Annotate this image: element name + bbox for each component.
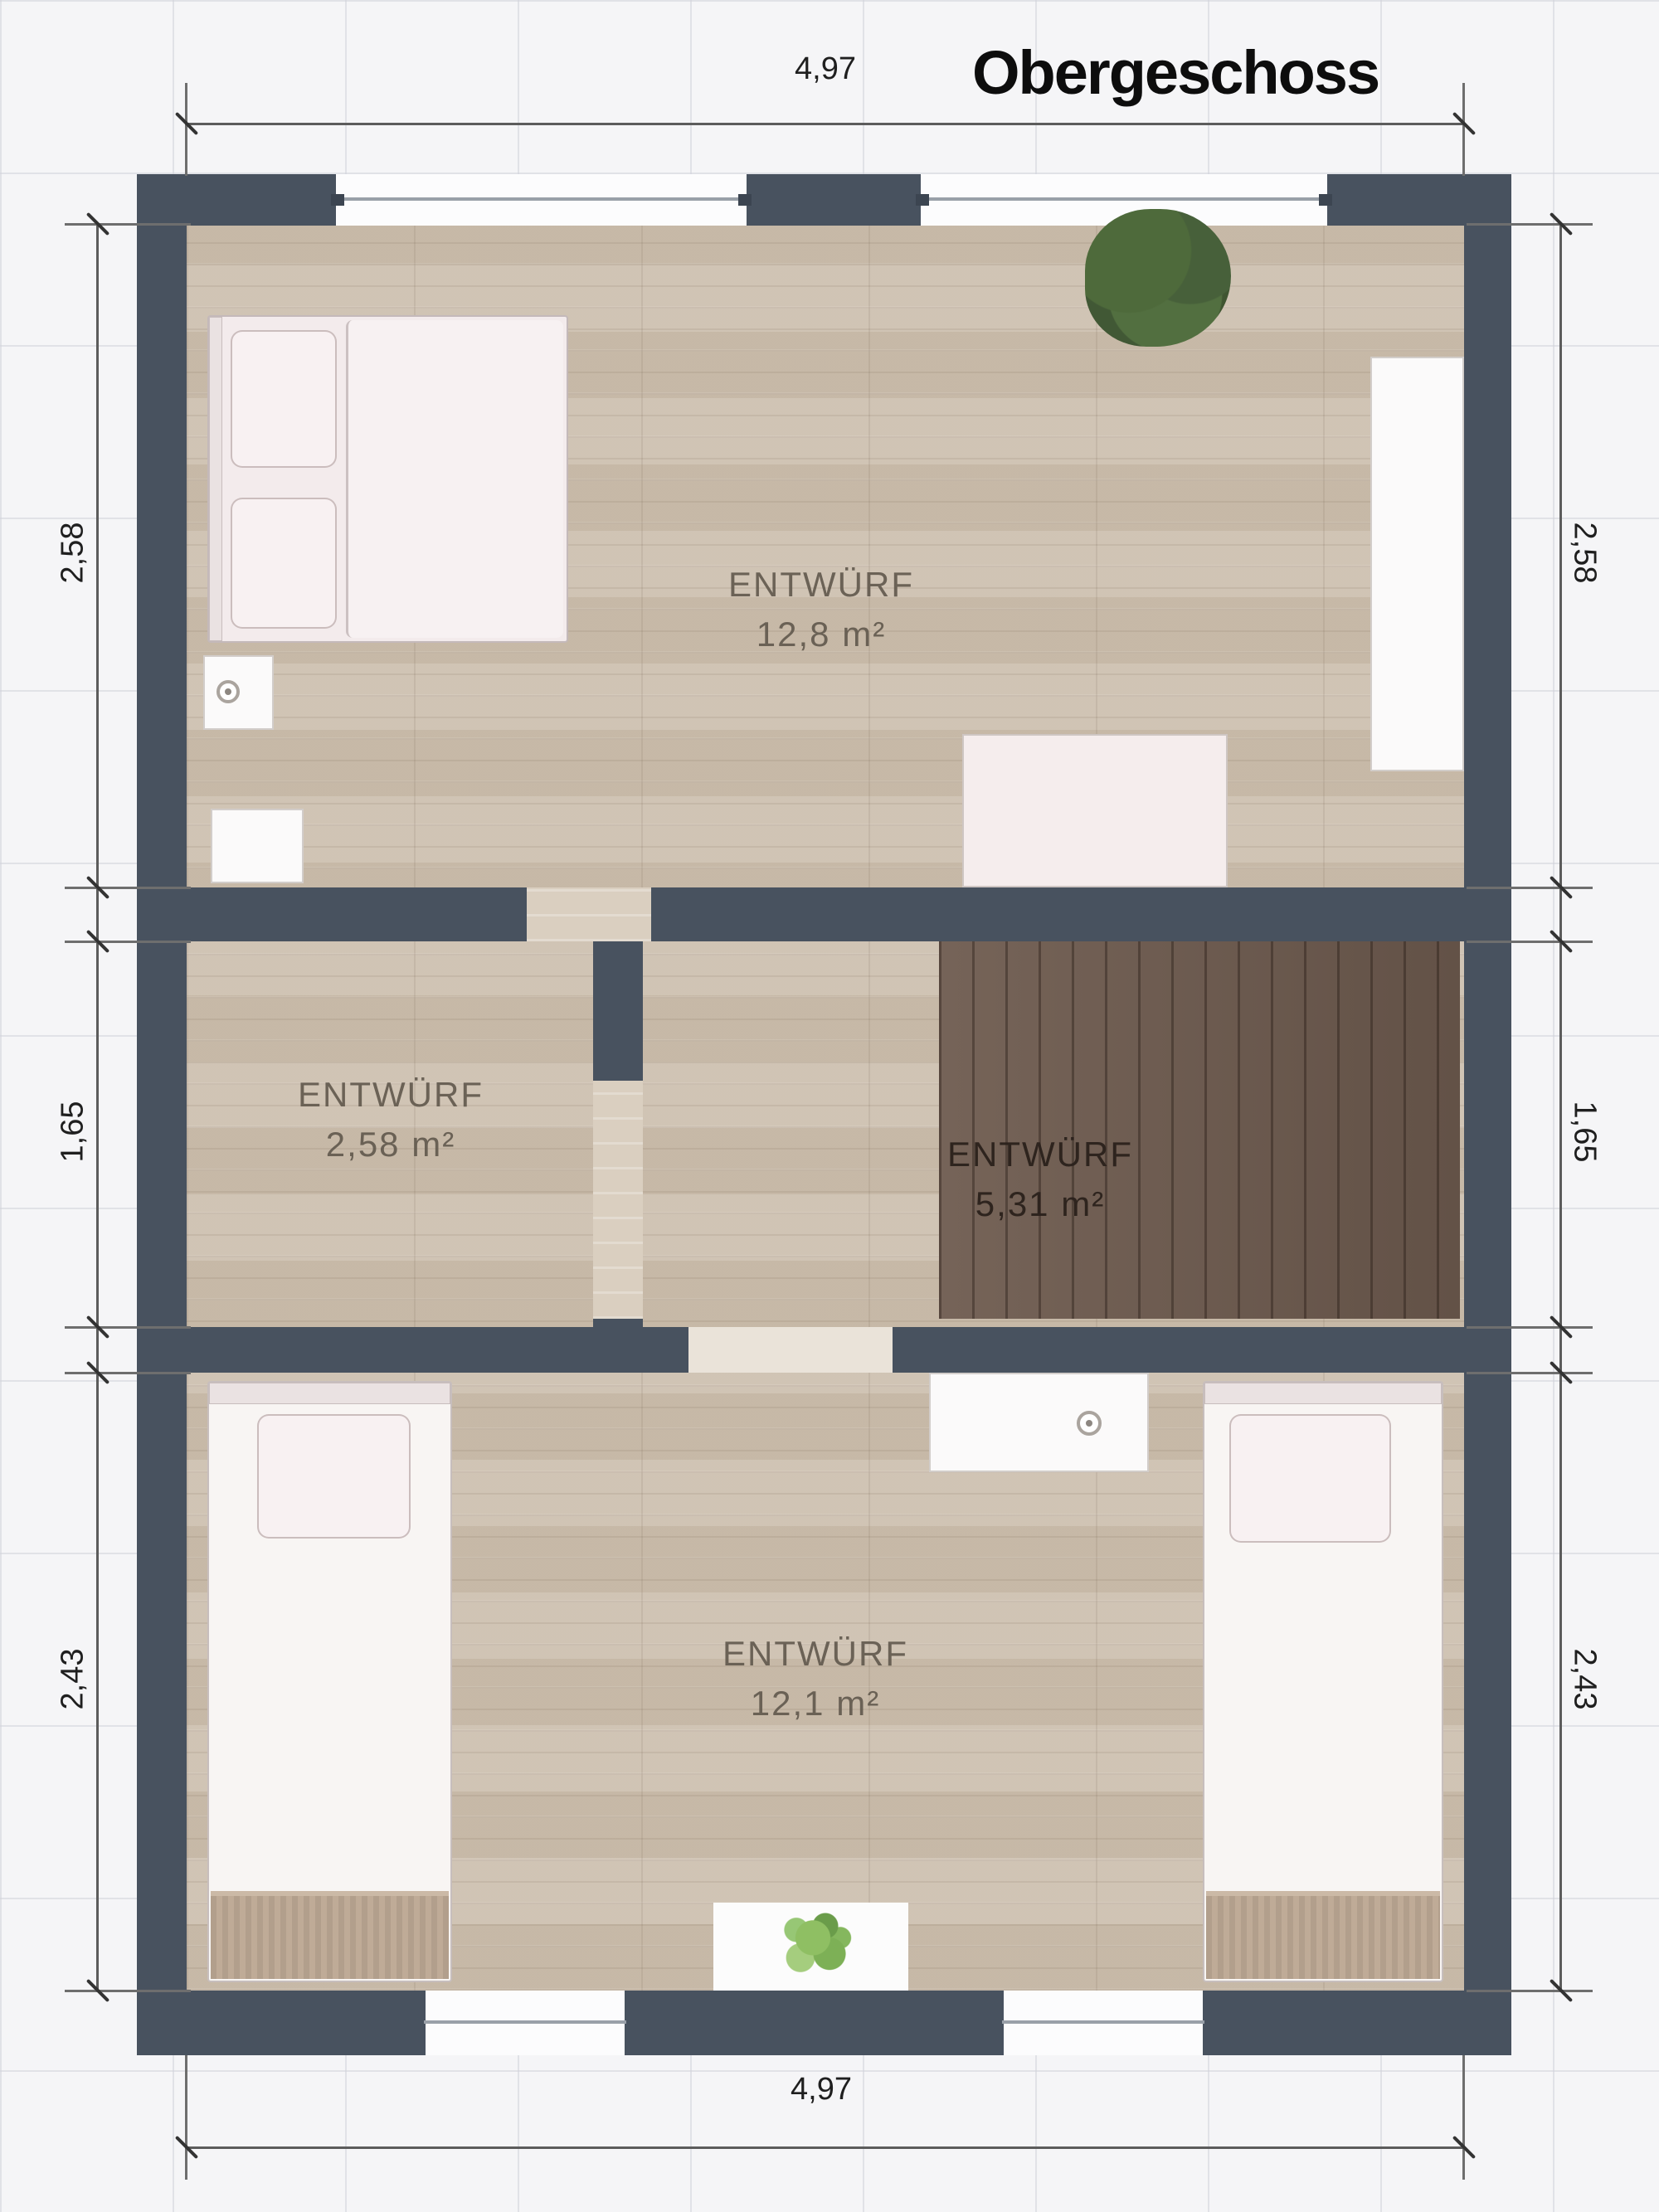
- wall-top-middle-pier: [747, 174, 921, 226]
- wall-bottom-right: [1203, 1991, 1511, 2055]
- room-area: 5,31 m²: [874, 1179, 1206, 1229]
- window-bottom-right: [1004, 1991, 1203, 2055]
- room-name: ENTWÜRF: [225, 1070, 557, 1120]
- dimension-line-left: [96, 224, 99, 1991]
- window-glazing: [919, 197, 1329, 201]
- dimension-label-right-middle: 1,65: [1567, 1049, 1603, 1215]
- dimension-line-right: [1559, 224, 1562, 1991]
- window-bottom-left: [426, 1991, 625, 2055]
- dimension-label-top: 4,97: [759, 51, 892, 87]
- bed-headboard: [1204, 1383, 1442, 1404]
- wall-left: [137, 174, 187, 2055]
- wardrobe: [1370, 357, 1464, 771]
- faucet-icon-center: [1086, 1420, 1092, 1427]
- double-bed: [207, 315, 568, 643]
- bed-duvet: [346, 320, 563, 638]
- window-glazing: [1002, 2020, 1204, 2024]
- small-plant-icon: [776, 1906, 859, 1986]
- pillow: [231, 498, 337, 629]
- bed-blanket: [1206, 1891, 1440, 1979]
- window-frame-nub: [916, 194, 929, 206]
- extension-line: [185, 83, 187, 176]
- wall-bottom-left: [137, 1991, 426, 2055]
- single-bed-left: [207, 1381, 452, 1982]
- extension-line: [65, 1990, 191, 1992]
- vanity-sink: [929, 1373, 1149, 1472]
- lamp-icon-center: [225, 688, 231, 695]
- wall-interior-c-right: [893, 1327, 1464, 1373]
- extension-line: [185, 2055, 187, 2180]
- pillow: [231, 330, 337, 468]
- extension-line: [1467, 223, 1593, 226]
- extension-line: [1467, 887, 1593, 889]
- wall-top-right-pier: [1327, 174, 1511, 226]
- pillow: [1229, 1414, 1391, 1543]
- page-title: Obergeschoss: [972, 37, 1379, 108]
- extension-line: [1467, 941, 1593, 943]
- extension-line: [1467, 1372, 1593, 1374]
- window-frame-nub: [1319, 194, 1332, 206]
- door-opening-closet: [593, 1081, 643, 1319]
- room-label-bedroom-top: ENTWÜRF 12,8 m²: [655, 560, 987, 659]
- nightstand: [203, 655, 274, 730]
- extension-line: [65, 1326, 191, 1329]
- dimension-label-left-middle: 1,65: [56, 1049, 91, 1215]
- wall-top-left-pier: [137, 174, 336, 226]
- wall-interior-a-right: [651, 887, 1464, 941]
- room-name: ENTWÜRF: [874, 1130, 1206, 1179]
- window-glazing: [334, 197, 748, 201]
- dimension-line-top: [187, 123, 1464, 125]
- dresser: [962, 734, 1228, 887]
- wall-interior-b-upper: [593, 941, 643, 1081]
- window-frame-nub: [738, 194, 752, 206]
- floorplan-page: Obergeschoss: [0, 0, 1659, 2212]
- extension-line: [65, 1372, 191, 1374]
- wall-interior-a-left: [187, 887, 527, 941]
- dimension-line-bottom: [187, 2146, 1464, 2149]
- window-glazing: [424, 2020, 626, 2024]
- room-label-bedroom-bottom: ENTWÜRF 12,1 m²: [649, 1629, 981, 1728]
- pillow: [257, 1414, 411, 1539]
- dimension-label-right-bottom: 2,43: [1567, 1597, 1603, 1762]
- room-area: 2,58 m²: [225, 1120, 557, 1169]
- extension-line: [1462, 83, 1465, 176]
- extension-line: [1467, 1990, 1593, 1992]
- bed-headboard: [209, 1383, 450, 1404]
- window-top-left: [336, 174, 747, 226]
- dimension-label-left-bottom: 2,43: [56, 1597, 91, 1762]
- extension-line: [65, 887, 191, 889]
- room-area: 12,8 m²: [655, 610, 987, 659]
- single-bed-right: [1203, 1381, 1443, 1982]
- wall-interior-c-left: [187, 1327, 688, 1373]
- extension-line: [65, 223, 191, 226]
- dimension-label-bottom: 4,97: [755, 2072, 888, 2107]
- room-area: 12,1 m²: [649, 1679, 981, 1728]
- extension-line: [1467, 1326, 1593, 1329]
- wall-bottom-middle: [625, 1991, 1004, 2055]
- wall-right: [1464, 174, 1511, 2055]
- bench: [211, 809, 304, 883]
- dimension-label-left-top: 2,58: [56, 470, 91, 636]
- bed-headboard: [209, 317, 222, 641]
- dimension-label-right-top: 2,58: [1567, 470, 1603, 636]
- room-label-stairs: ENTWÜRF 5,31 m²: [874, 1130, 1206, 1229]
- extension-line: [65, 941, 191, 943]
- extension-line: [1462, 2055, 1465, 2180]
- door-opening-top: [527, 887, 651, 941]
- window-frame-nub: [331, 194, 344, 206]
- room-label-closet: ENTWÜRF 2,58 m²: [225, 1070, 557, 1169]
- bed-blanket: [211, 1891, 449, 1979]
- door-opening-bottom: [688, 1327, 893, 1373]
- room-name: ENTWÜRF: [655, 560, 987, 610]
- room-name: ENTWÜRF: [649, 1629, 981, 1679]
